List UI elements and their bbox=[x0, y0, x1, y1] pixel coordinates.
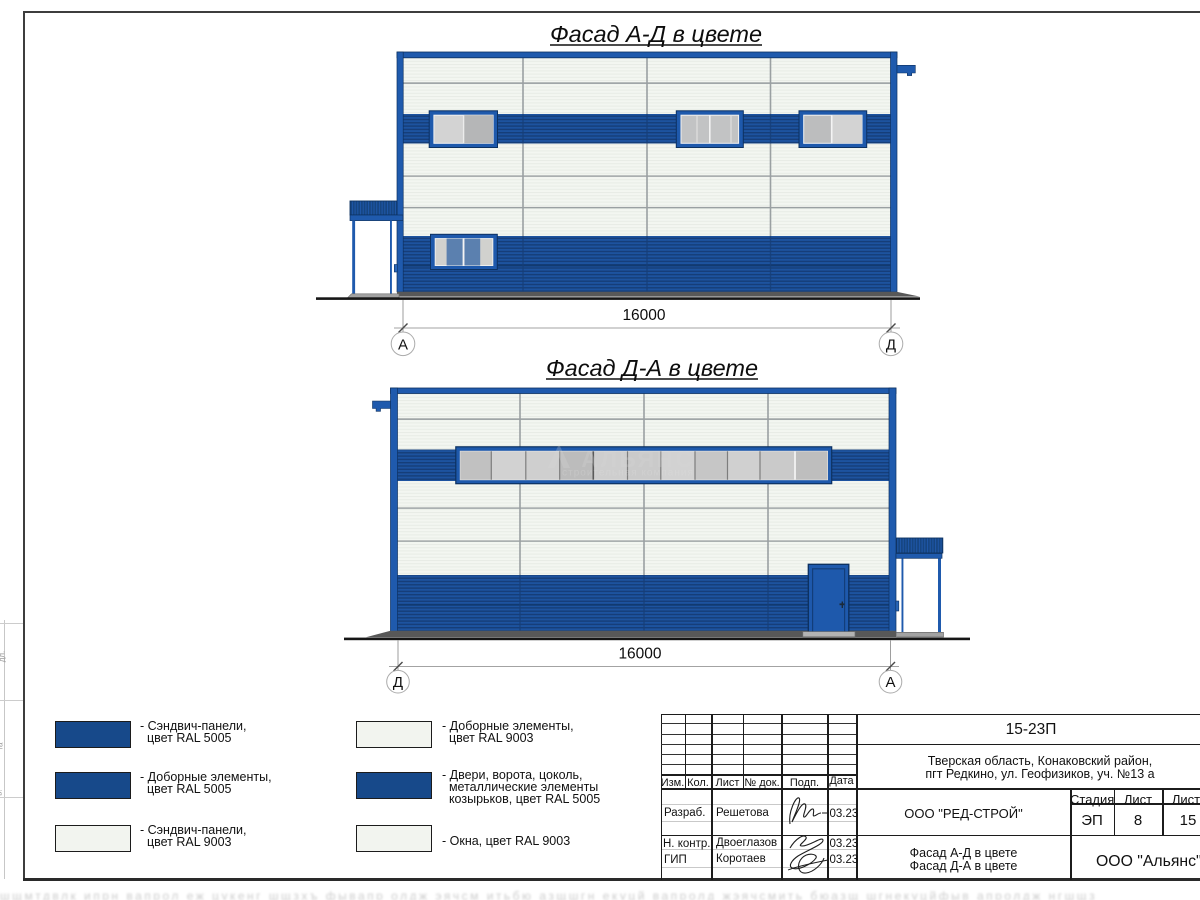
svg-text:16000: 16000 bbox=[618, 646, 661, 663]
svg-text:Д: Д bbox=[393, 674, 403, 691]
svg-text:Фасад А-Д в цвете: Фасад А-Д в цвете bbox=[550, 21, 762, 47]
svg-text:А: А bbox=[398, 336, 408, 353]
svg-text:А: А bbox=[885, 674, 895, 691]
svg-text:Д: Д bbox=[886, 336, 896, 353]
svg-text:Фасад Д-А в цвете: Фасад Д-А в цвете bbox=[546, 355, 758, 381]
svg-text:16000: 16000 bbox=[622, 307, 665, 324]
svg-text:строительная компания: строительная компания bbox=[562, 468, 694, 479]
